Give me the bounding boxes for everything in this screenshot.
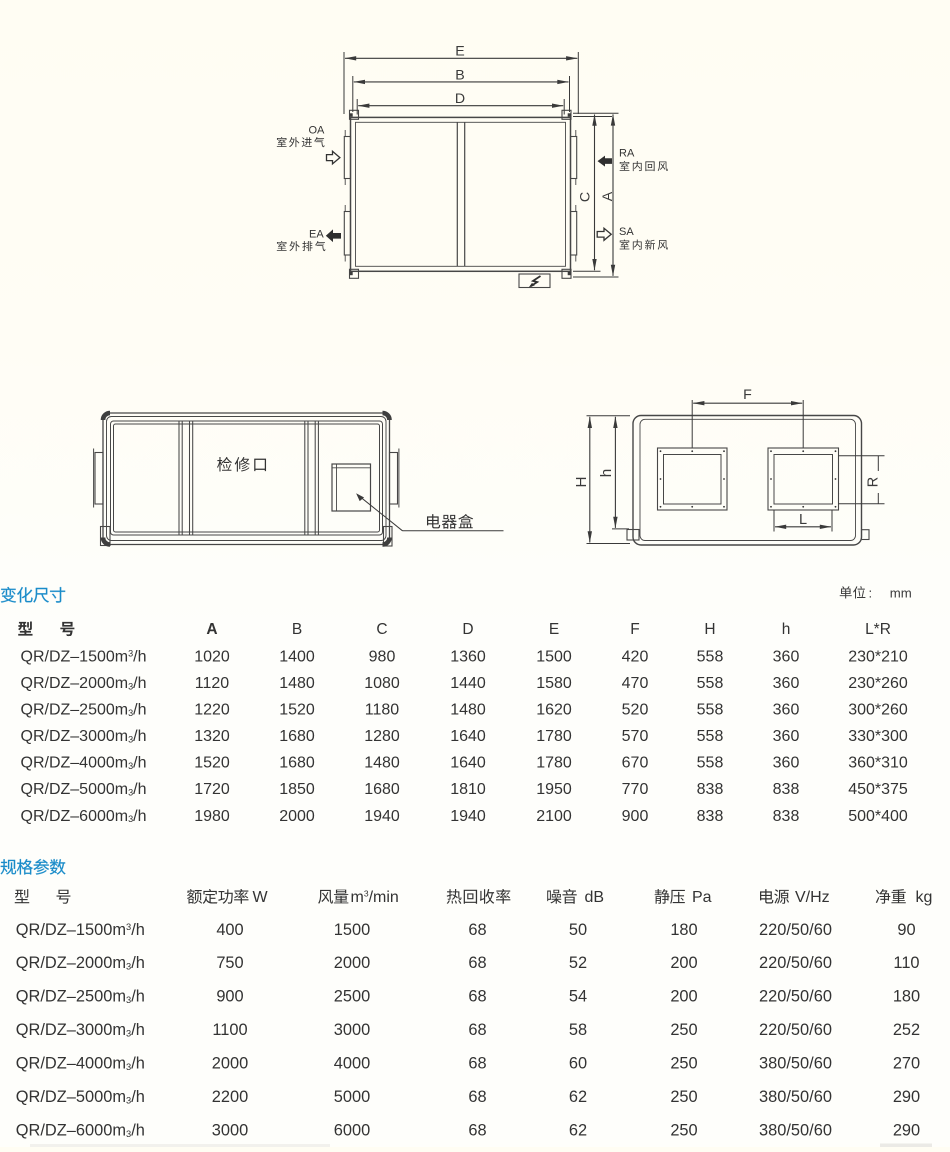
svg-text:m3/min: m3/min xyxy=(351,889,399,907)
svg-text:330*300: 330*300 xyxy=(848,728,908,745)
svg-text:L*R: L*R xyxy=(865,621,891,638)
svg-text:C: C xyxy=(578,192,594,202)
svg-text:570: 570 xyxy=(622,728,649,745)
svg-text:B: B xyxy=(292,621,302,638)
svg-text:QR/DZ–4000m3/h: QR/DZ–4000m3/h xyxy=(16,1055,145,1073)
svg-text:200: 200 xyxy=(670,954,697,972)
svg-text:1500: 1500 xyxy=(334,921,370,939)
svg-text:1620: 1620 xyxy=(536,702,572,719)
svg-text:250: 250 xyxy=(670,1055,697,1073)
svg-text:QR/DZ–2000m3/h: QR/DZ–2000m3/h xyxy=(16,954,145,972)
svg-text:E: E xyxy=(455,43,464,59)
svg-text:C: C xyxy=(376,621,387,638)
svg-text:670: 670 xyxy=(622,755,649,772)
svg-text:QR/DZ–1500m3/h: QR/DZ–1500m3/h xyxy=(16,921,145,939)
svg-text:1980: 1980 xyxy=(194,808,230,825)
svg-text:A: A xyxy=(600,191,616,201)
svg-text::: : xyxy=(869,586,873,601)
svg-text:1780: 1780 xyxy=(536,728,572,745)
svg-text:558: 558 xyxy=(697,728,724,745)
svg-text:250: 250 xyxy=(670,1021,697,1039)
svg-text:380/50/60: 380/50/60 xyxy=(759,1122,832,1140)
svg-text:252: 252 xyxy=(893,1021,920,1039)
svg-text:6000: 6000 xyxy=(334,1122,370,1140)
svg-text:1320: 1320 xyxy=(194,728,230,745)
svg-text:1120: 1120 xyxy=(195,675,230,692)
svg-text:QR/DZ–2500m3/h: QR/DZ–2500m3/h xyxy=(21,702,147,719)
svg-text:5000: 5000 xyxy=(334,1088,370,1106)
svg-text:68: 68 xyxy=(468,954,486,972)
svg-text:1640: 1640 xyxy=(450,728,486,745)
svg-text:360*310: 360*310 xyxy=(848,755,908,772)
svg-text:200: 200 xyxy=(670,988,697,1006)
svg-text:Pa: Pa xyxy=(692,889,712,906)
svg-text:770: 770 xyxy=(622,781,649,798)
svg-text:838: 838 xyxy=(697,781,724,798)
svg-text:QR/DZ–6000m3/h: QR/DZ–6000m3/h xyxy=(16,1122,145,1140)
svg-text:1280: 1280 xyxy=(364,728,400,745)
svg-text:QR/DZ–6000m3/h: QR/DZ–6000m3/h xyxy=(21,808,147,825)
svg-text:68: 68 xyxy=(468,988,486,1006)
svg-text:900: 900 xyxy=(216,988,243,1006)
svg-text:H: H xyxy=(573,477,590,488)
svg-text:kg: kg xyxy=(916,889,933,906)
svg-text:1180: 1180 xyxy=(365,702,400,719)
svg-text:220/50/60: 220/50/60 xyxy=(759,921,832,939)
svg-text:3000: 3000 xyxy=(212,1122,248,1140)
svg-text:300*260: 300*260 xyxy=(848,702,908,719)
svg-text:68: 68 xyxy=(468,1021,486,1039)
svg-text:68: 68 xyxy=(468,1055,486,1073)
svg-text:290: 290 xyxy=(893,1122,920,1140)
svg-text:558: 558 xyxy=(697,702,724,719)
svg-text:1360: 1360 xyxy=(450,649,486,666)
svg-text:1810: 1810 xyxy=(450,781,486,798)
svg-text:SA: SA xyxy=(619,226,634,238)
svg-text:V/Hz: V/Hz xyxy=(795,889,830,906)
svg-text:W: W xyxy=(253,889,269,906)
svg-text:H: H xyxy=(704,621,715,638)
svg-text:1680: 1680 xyxy=(364,781,400,798)
svg-text:1480: 1480 xyxy=(279,675,315,692)
svg-text:900: 900 xyxy=(622,808,649,825)
svg-text:1580: 1580 xyxy=(536,675,572,692)
svg-text:54: 54 xyxy=(569,988,587,1006)
svg-text:980: 980 xyxy=(369,649,396,666)
svg-text:1480: 1480 xyxy=(450,702,486,719)
svg-text:1940: 1940 xyxy=(450,808,486,825)
svg-text:QR/DZ–5000m3/h: QR/DZ–5000m3/h xyxy=(21,781,147,798)
svg-text:58: 58 xyxy=(569,1021,587,1039)
svg-text:250: 250 xyxy=(670,1088,697,1106)
svg-text:380/50/60: 380/50/60 xyxy=(759,1088,832,1106)
svg-text:838: 838 xyxy=(697,808,724,825)
svg-text:1220: 1220 xyxy=(194,702,230,719)
svg-text:2100: 2100 xyxy=(536,808,572,825)
svg-text:360: 360 xyxy=(773,755,800,772)
svg-text:EA: EA xyxy=(309,229,324,241)
svg-text:290: 290 xyxy=(893,1088,920,1106)
svg-text:4000: 4000 xyxy=(334,1055,370,1073)
svg-text:D: D xyxy=(455,91,465,107)
svg-text:1720: 1720 xyxy=(194,781,230,798)
svg-text:QR/DZ–5000m3/h: QR/DZ–5000m3/h xyxy=(16,1088,145,1106)
svg-text:68: 68 xyxy=(468,1088,486,1106)
svg-text:h: h xyxy=(782,621,791,638)
svg-text:1020: 1020 xyxy=(194,649,230,666)
svg-text:400: 400 xyxy=(216,921,243,939)
svg-text:1080: 1080 xyxy=(364,675,400,692)
svg-text:838: 838 xyxy=(773,781,800,798)
svg-text:F: F xyxy=(743,387,752,403)
svg-text:2000: 2000 xyxy=(212,1055,248,1073)
svg-text:L: L xyxy=(799,512,807,528)
svg-text:1950: 1950 xyxy=(536,781,572,798)
svg-text:1480: 1480 xyxy=(364,755,400,772)
svg-text:220/50/60: 220/50/60 xyxy=(759,954,832,972)
svg-text:OA: OA xyxy=(309,124,326,136)
svg-text:68: 68 xyxy=(468,1122,486,1140)
svg-text:1100: 1100 xyxy=(212,1021,247,1039)
svg-text:220/50/60: 220/50/60 xyxy=(759,988,832,1006)
svg-text:E: E xyxy=(549,621,559,638)
svg-text:mm: mm xyxy=(890,586,912,601)
svg-text:D: D xyxy=(462,621,473,638)
svg-text:1680: 1680 xyxy=(279,755,315,772)
svg-text:180: 180 xyxy=(670,921,697,939)
svg-text:50: 50 xyxy=(569,921,587,939)
svg-text:558: 558 xyxy=(697,675,724,692)
svg-text:2000: 2000 xyxy=(279,808,315,825)
svg-text:420: 420 xyxy=(622,649,649,666)
svg-text:dB: dB xyxy=(585,889,605,906)
svg-text:1640: 1640 xyxy=(450,755,486,772)
svg-text:1680: 1680 xyxy=(279,728,315,745)
svg-text:250: 250 xyxy=(670,1122,697,1140)
svg-text:QR/DZ–3000m3/h: QR/DZ–3000m3/h xyxy=(21,728,147,745)
svg-text:1850: 1850 xyxy=(279,781,315,798)
svg-text:60: 60 xyxy=(569,1055,587,1073)
svg-text:750: 750 xyxy=(216,954,243,972)
svg-text:RA: RA xyxy=(619,147,635,159)
svg-text:QR/DZ–3000m3/h: QR/DZ–3000m3/h xyxy=(16,1021,145,1039)
svg-text:1500: 1500 xyxy=(536,649,572,666)
svg-text:62: 62 xyxy=(569,1122,587,1140)
svg-text:QR/DZ–4000m3/h: QR/DZ–4000m3/h xyxy=(21,755,147,772)
svg-text:2200: 2200 xyxy=(212,1088,248,1106)
svg-text:500*400: 500*400 xyxy=(848,808,908,825)
svg-text:B: B xyxy=(455,67,464,83)
svg-text:360: 360 xyxy=(773,649,800,666)
svg-text:360: 360 xyxy=(773,675,800,692)
svg-text:230*210: 230*210 xyxy=(848,649,908,666)
svg-text:838: 838 xyxy=(773,808,800,825)
svg-text:1780: 1780 xyxy=(536,755,572,772)
svg-text:558: 558 xyxy=(697,755,724,772)
svg-text:1520: 1520 xyxy=(194,755,230,772)
svg-text:360: 360 xyxy=(773,728,800,745)
svg-text:470: 470 xyxy=(622,675,649,692)
svg-text:520: 520 xyxy=(622,702,649,719)
svg-text:QR/DZ–1500m3/h: QR/DZ–1500m3/h xyxy=(21,649,147,666)
svg-text:F: F xyxy=(630,621,639,638)
svg-text:450*375: 450*375 xyxy=(848,781,908,798)
svg-text:3000: 3000 xyxy=(334,1021,370,1039)
svg-text:230*260: 230*260 xyxy=(848,675,908,692)
svg-text:1520: 1520 xyxy=(279,702,315,719)
svg-text:52: 52 xyxy=(569,954,587,972)
svg-text:360: 360 xyxy=(773,702,800,719)
svg-text:558: 558 xyxy=(697,649,724,666)
svg-text:2500: 2500 xyxy=(334,988,370,1006)
svg-text:110: 110 xyxy=(893,954,919,972)
svg-text:62: 62 xyxy=(569,1088,587,1106)
svg-text:1400: 1400 xyxy=(279,649,315,666)
svg-text:1940: 1940 xyxy=(364,808,400,825)
svg-text:R: R xyxy=(866,477,882,487)
svg-text:A: A xyxy=(206,621,217,638)
svg-text:QR/DZ–2000m3/h: QR/DZ–2000m3/h xyxy=(21,675,147,692)
svg-text:90: 90 xyxy=(897,921,915,939)
svg-text:220/50/60: 220/50/60 xyxy=(759,1021,832,1039)
svg-text:68: 68 xyxy=(468,921,486,939)
svg-text:h: h xyxy=(598,469,615,477)
svg-text:380/50/60: 380/50/60 xyxy=(759,1055,832,1073)
svg-text:1440: 1440 xyxy=(450,675,486,692)
svg-text:2000: 2000 xyxy=(334,954,370,972)
svg-text:QR/DZ–2500m3/h: QR/DZ–2500m3/h xyxy=(16,988,145,1006)
svg-text:270: 270 xyxy=(893,1055,920,1073)
svg-text:180: 180 xyxy=(893,988,920,1006)
